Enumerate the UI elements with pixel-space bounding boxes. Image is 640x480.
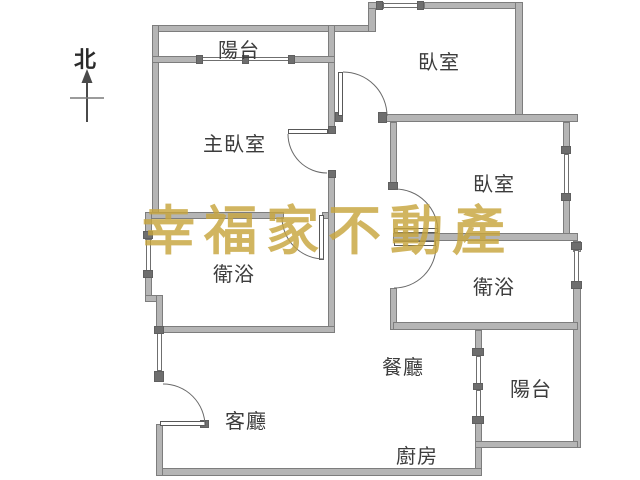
room-label-kitchen: 廚房 [396,440,438,469]
door-arc-entry [163,384,205,426]
north-label: 北 [74,42,96,74]
room-label-bathroom-left: 衛浴 [213,258,255,287]
door-arc-bedroom-top [343,72,387,116]
room-label-balcony-top: 陽台 [218,34,260,63]
door-arc-master-bedroom [288,134,327,173]
compass-arrow-icon [70,69,104,122]
room-label-bedroom-top: 臥室 [418,46,460,75]
room-label-bedroom-right: 臥室 [473,168,515,197]
floor-plan: 北 陽台 臥室 主臥室 臥室 衛浴 衛浴 餐廳 陽台 客廳 廚房 幸福家不動產 [0,0,640,480]
room-label-living-room: 客廳 [225,405,267,434]
room-label-balcony-bottom: 陽台 [510,373,552,402]
room-label-bathroom-right: 衛浴 [473,271,515,300]
watermark-text: 幸福家不動產 [142,205,514,261]
room-label-master-bedroom: 主臥室 [203,128,266,157]
room-label-dining-room: 餐廳 [382,351,424,380]
